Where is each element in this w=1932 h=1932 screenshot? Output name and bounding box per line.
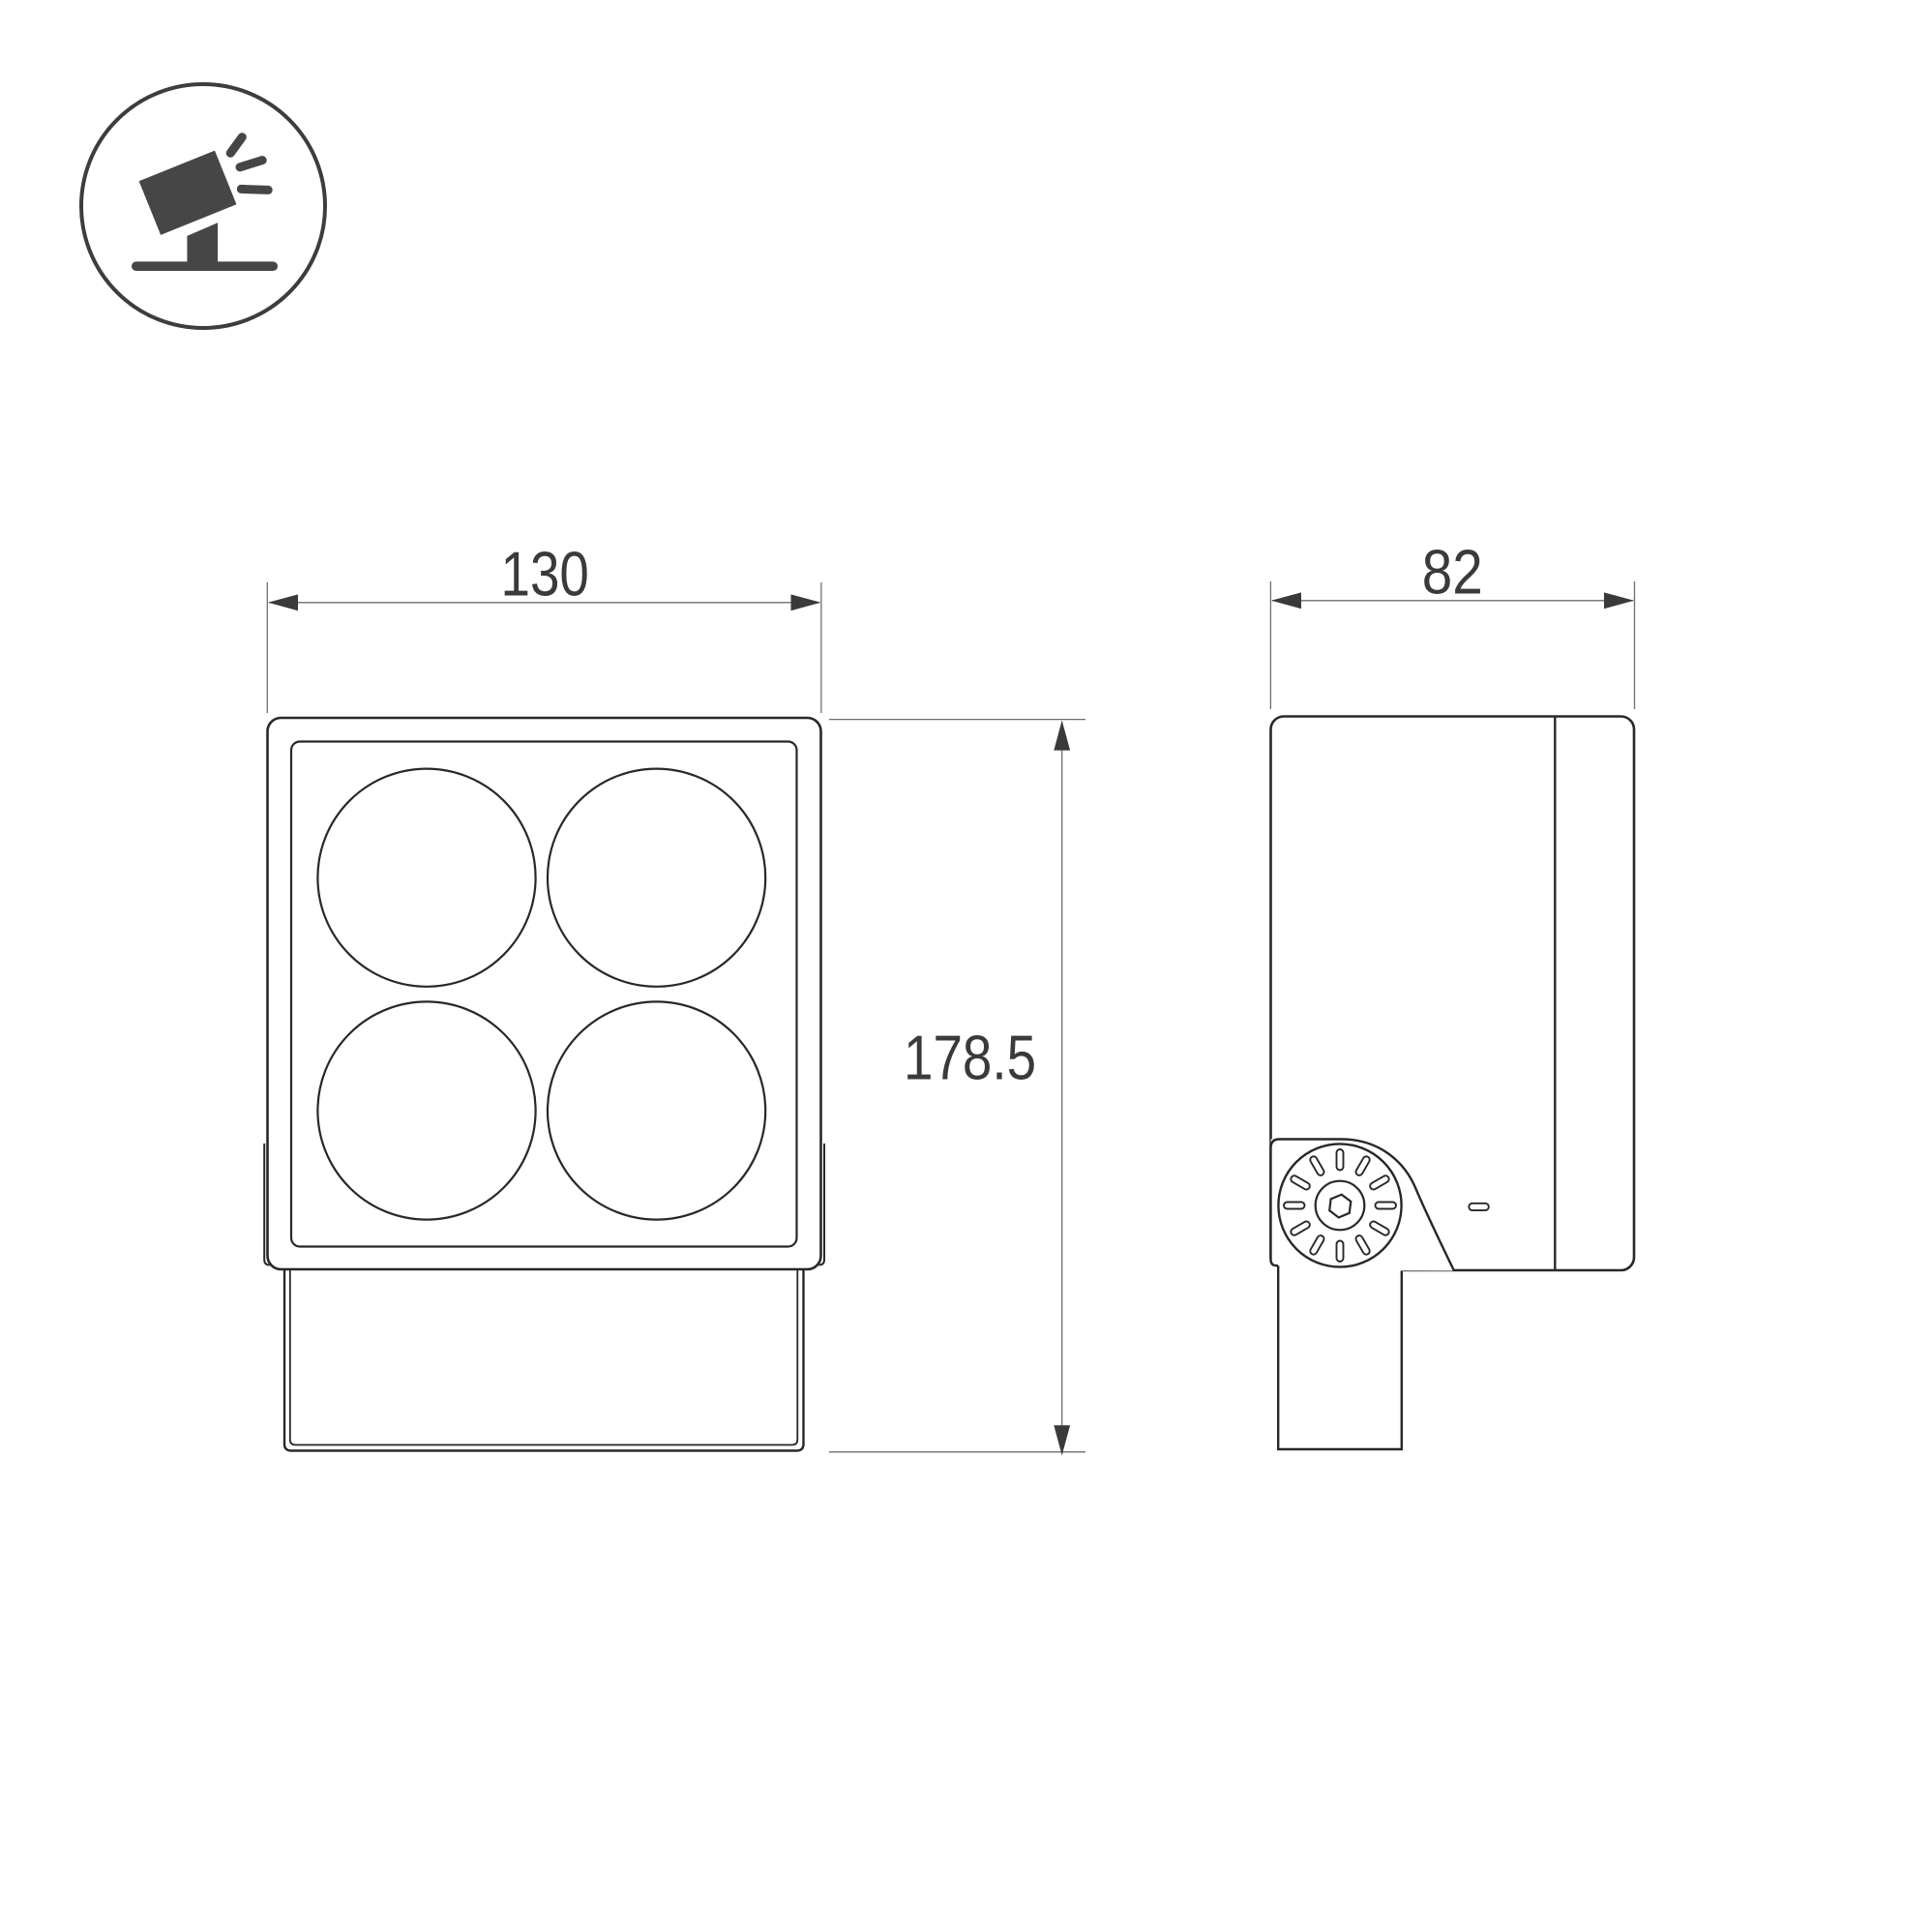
svg-text:178.5: 178.5 — [904, 1023, 1036, 1093]
svg-text:82: 82 — [1422, 537, 1483, 608]
svg-text:130: 130 — [501, 538, 589, 609]
